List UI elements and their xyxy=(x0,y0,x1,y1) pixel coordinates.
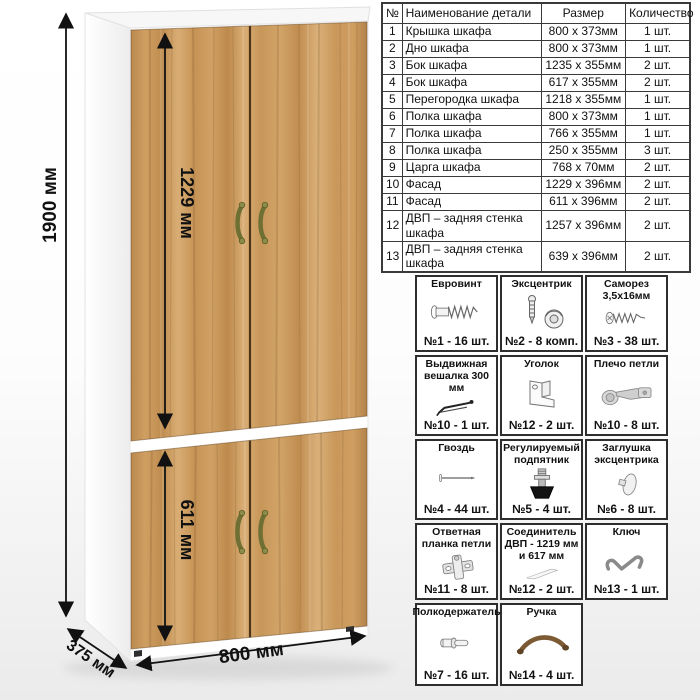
part-quantity: 1 шт. xyxy=(626,23,690,40)
hardware-item-hinge-arm: Плечо петли №10 - 8 шт. xyxy=(585,355,668,436)
hardware-item-count: №12 - 2 шт. xyxy=(509,418,575,432)
hinge-plate-icon xyxy=(422,551,492,583)
table-row: 13ДВП – задняя стенка шкафа639 х 396мм2 … xyxy=(382,241,690,272)
part-number: 2 xyxy=(382,40,402,57)
hardware-item-count: №14 - 4 шт. xyxy=(509,668,575,682)
hardware-item-title: Выдвижная вешалка 300 мм xyxy=(418,359,495,394)
hardware-grid: Евровинт №1 - 16 шт. Эксцентрик xyxy=(415,275,668,686)
part-number: 1 xyxy=(382,23,402,40)
table-row: 1Крышка шкафа800 х 373мм1 шт. xyxy=(382,23,690,40)
hardware-item-count: №10 - 1 шт. xyxy=(424,418,490,432)
part-name: Бок шкафа xyxy=(402,74,541,91)
part-name: Полка шкафа xyxy=(402,108,541,125)
hardware-item-nail: Гвоздь №4 - 44 шт. xyxy=(415,439,498,520)
hardware-item-corner-bracket: Уголок №12 - 2 шт. xyxy=(500,355,583,436)
hardware-item-title: Саморез 3,5х16мм xyxy=(588,279,665,303)
cam-cover-icon xyxy=(592,467,662,503)
corner-bracket-icon xyxy=(506,371,578,418)
header-size: Размер xyxy=(541,3,626,23)
part-size: 800 х 373мм xyxy=(541,23,626,40)
handle-icon xyxy=(507,619,577,668)
hardware-item-count: №10 - 8 шт. xyxy=(594,418,660,432)
hardware-item-eccentric: Эксцентрик №2 - 8 комп. xyxy=(500,275,583,352)
part-quantity: 2 шт. xyxy=(626,193,690,210)
part-size: 800 х 373мм xyxy=(541,40,626,57)
part-size: 1229 х 396мм xyxy=(541,176,626,193)
part-name: Бок шкафа xyxy=(402,57,541,74)
part-quantity: 1 шт. xyxy=(626,40,690,57)
part-quantity: 3 шт. xyxy=(626,142,690,159)
part-number: 5 xyxy=(382,91,402,108)
table-row: 5Перегородка шкафа1218 х 355мм1 шт. xyxy=(382,91,690,108)
hardware-item-hdf-connector: Соединитель ДВП - 1219 мм и 617 мм №12 -… xyxy=(500,523,583,600)
table-row: 7Полка шкафа766 х 355мм1 шт. xyxy=(382,125,690,142)
hardware-item-title: Заглушка эксцентрика xyxy=(588,443,665,467)
pullout-hanger-icon xyxy=(422,394,492,418)
cabinet-foot-right xyxy=(346,626,354,632)
table-row: 3Бок шкафа1235 х 355мм2 шт. xyxy=(382,57,690,74)
hardware-item-title: Регулируемый подпятник xyxy=(503,443,580,467)
hardware-item-shelf-pin: Полкодержатель №7 - 16 шт. xyxy=(415,603,498,686)
part-quantity: 1 шт. xyxy=(626,108,690,125)
part-number: 8 xyxy=(382,142,402,159)
hardware-item-title: Эксцентрик xyxy=(511,279,571,291)
parts-table: № Наименование детали Размер Количество … xyxy=(381,2,691,273)
hinge-arm-icon xyxy=(591,371,663,418)
table-row: 4Бок шкафа617 х 355мм2 шт. xyxy=(382,74,690,91)
hardware-item-adjustable-foot: Регулируемый подпятник №5 - 4 шт. xyxy=(500,439,583,520)
bottom-door-dimension-label: 611 мм xyxy=(177,500,197,561)
part-name: Полка шкафа xyxy=(402,142,541,159)
hardware-item-title: Ручка xyxy=(526,607,556,619)
part-size: 250 х 355мм xyxy=(541,142,626,159)
header-part-name: Наименование детали xyxy=(402,3,541,23)
part-size: 617 х 355мм xyxy=(541,74,626,91)
hdf-connector-icon xyxy=(506,562,578,582)
part-name: Фасад xyxy=(402,176,541,193)
hardware-item-count: №2 - 8 комп. xyxy=(505,334,578,348)
hardware-item-count: №4 - 44 шт. xyxy=(424,502,490,516)
parts-table-header-row: № Наименование детали Размер Количество xyxy=(382,3,690,23)
part-quantity: 1 шт. xyxy=(626,125,690,142)
cabinet-foot-left xyxy=(134,650,142,657)
hardware-item-hinge-plate: Ответная планка петли №11 - 8 шт. xyxy=(415,523,498,600)
part-quantity: 2 шт. xyxy=(626,176,690,193)
part-number: 12 xyxy=(382,210,402,241)
hardware-item-count: №1 - 16 шт. xyxy=(424,334,490,348)
part-number: 11 xyxy=(382,193,402,210)
part-size: 639 х 396мм xyxy=(541,241,626,272)
eurovint-screw-icon xyxy=(421,291,493,334)
header-quantity: Количество xyxy=(626,3,690,23)
part-number: 7 xyxy=(382,125,402,142)
hardware-item-eurovint: Евровинт №1 - 16 шт. xyxy=(415,275,498,352)
part-size: 768 х 70мм xyxy=(541,159,626,176)
hex-key-icon xyxy=(592,539,662,582)
part-quantity: 1 шт. xyxy=(626,91,690,108)
part-quantity: 2 шт. xyxy=(626,57,690,74)
hardware-item-count: №7 - 16 шт. xyxy=(424,668,490,682)
height-dimension-label: 1900 мм xyxy=(40,167,61,243)
header-number: № xyxy=(382,3,402,23)
cabinet-side-panel xyxy=(85,13,130,661)
part-name: Царга шкафа xyxy=(402,159,541,176)
part-name: Фасад xyxy=(402,193,541,210)
hardware-item-handle: Ручка №14 - 4 шт. xyxy=(500,603,583,686)
hardware-item-count: №5 - 4 шт. xyxy=(512,502,571,516)
part-size: 766 х 355мм xyxy=(541,125,626,142)
table-row: 10Фасад1229 х 396мм2 шт. xyxy=(382,176,690,193)
part-name: Полка шкафа xyxy=(402,125,541,142)
part-quantity: 2 шт. xyxy=(626,210,690,241)
part-number: 13 xyxy=(382,241,402,272)
part-quantity: 2 шт. xyxy=(626,159,690,176)
part-number: 10 xyxy=(382,176,402,193)
hardware-item-title: Уголок xyxy=(524,359,559,371)
hardware-item-title: Соединитель ДВП - 1219 мм и 617 мм xyxy=(503,527,580,562)
hardware-item-cam-cover: Заглушка эксцентрика №6 - 8 шт. xyxy=(585,439,668,520)
hardware-item-title: Плечо петли xyxy=(594,359,659,371)
table-row: 12ДВП – задняя стенка шкафа1257 х 396мм2… xyxy=(382,210,690,241)
hardware-item-count: №6 - 8 шт. xyxy=(597,502,656,516)
top-door-dimension-label: 1229 мм xyxy=(177,167,197,239)
part-number: 6 xyxy=(382,108,402,125)
hardware-item-count: №3 - 38 шт. xyxy=(594,334,660,348)
part-quantity: 2 шт. xyxy=(626,241,690,272)
hardware-item-key: Ключ №13 - 1 шт. xyxy=(585,523,668,600)
part-size: 611 х 396мм xyxy=(541,193,626,210)
table-row: 8Полка шкафа250 х 355мм3 шт. xyxy=(382,142,690,159)
hardware-item-title: Ключ xyxy=(613,527,641,539)
table-row: 6Полка шкафа800 х 373мм1 шт. xyxy=(382,108,690,125)
shelf-pin-icon xyxy=(422,619,492,668)
part-name: ДВП – задняя стенка шкафа xyxy=(402,210,541,241)
part-number: 4 xyxy=(382,74,402,91)
part-number: 3 xyxy=(382,57,402,74)
hardware-item-title: Евровинт xyxy=(431,279,482,291)
part-name: Перегородка шкафа xyxy=(402,91,541,108)
part-name: ДВП – задняя стенка шкафа xyxy=(402,241,541,272)
part-name: Крышка шкафа xyxy=(402,23,541,40)
adjustable-foot-icon xyxy=(507,467,577,503)
eccentric-cam-icon xyxy=(506,291,578,334)
hardware-item-title: Полкодержатель xyxy=(412,607,500,619)
part-name: Дно шкафа xyxy=(402,40,541,57)
hardware-item-count: №11 - 8 шт. xyxy=(424,582,489,596)
part-size: 1235 х 355мм xyxy=(541,57,626,74)
part-size: 1257 х 396мм xyxy=(541,210,626,241)
part-size: 1218 х 355мм xyxy=(541,91,626,108)
table-row: 11Фасад611 х 396мм2 шт. xyxy=(382,193,690,210)
part-number: 9 xyxy=(382,159,402,176)
part-size: 800 х 373мм xyxy=(541,108,626,125)
hardware-item-count: №12 - 2 шт. xyxy=(509,582,575,596)
hardware-item-pullout-hanger: Выдвижная вешалка 300 мм №10 - 1 шт. xyxy=(415,355,498,436)
hardware-item-count: №13 - 1 шт. xyxy=(594,582,660,596)
wardrobe-illustration: 1900 мм 1229 мм 611 мм 800 мм 375 мм xyxy=(0,0,400,700)
table-row: 9Царга шкафа768 х 70мм2 шт. xyxy=(382,159,690,176)
table-row: 2Дно шкафа800 х 373мм1 шт. xyxy=(382,40,690,57)
hardware-item-title: Ответная планка петли xyxy=(418,527,495,551)
self-tapping-screw-icon xyxy=(594,303,660,335)
part-quantity: 2 шт. xyxy=(626,74,690,91)
hardware-item-title: Гвоздь xyxy=(438,443,475,455)
nail-icon xyxy=(422,455,492,502)
hardware-item-selftapping-screw: Саморез 3,5х16мм №3 - 38 шт. xyxy=(585,275,668,352)
